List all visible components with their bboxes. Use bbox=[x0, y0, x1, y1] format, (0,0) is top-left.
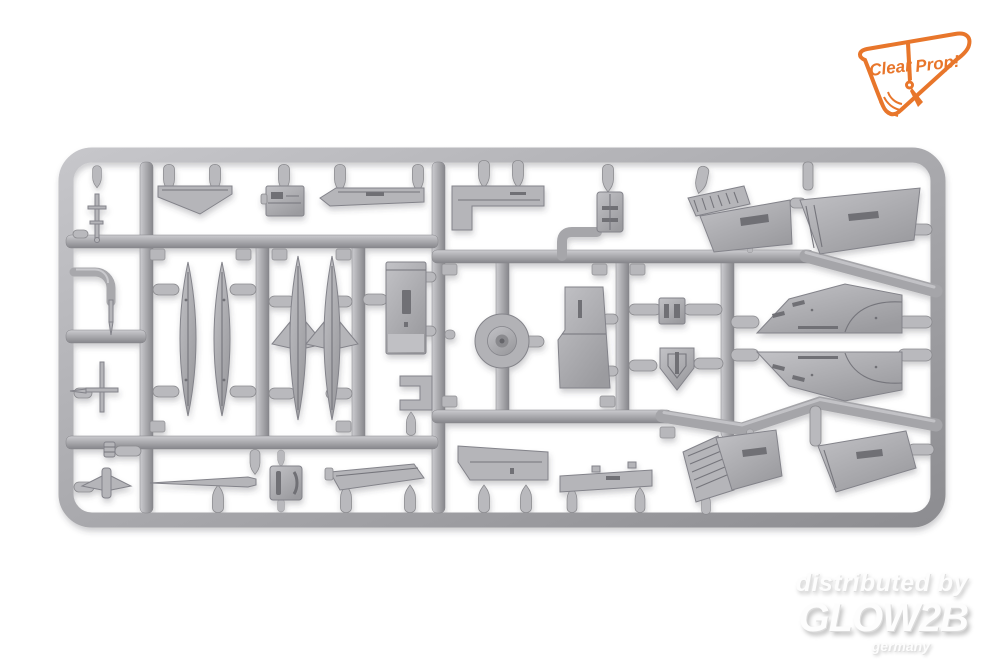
part-ribbed-flap-pair-bottom bbox=[683, 430, 782, 502]
part-triangular-plate bbox=[158, 186, 232, 214]
part-l-plate-top bbox=[452, 186, 544, 230]
part-small-clamp-top bbox=[597, 192, 623, 232]
runner-v4 bbox=[432, 162, 445, 513]
watermark-brand-glow2b: GLOW2B bbox=[796, 598, 968, 638]
part-tail-fin bbox=[558, 287, 610, 388]
runner-h2-mid bbox=[432, 410, 672, 423]
part-needle-probe bbox=[150, 477, 256, 487]
logo-text-prop: Prop! bbox=[914, 52, 961, 76]
sprue-parts bbox=[70, 186, 920, 502]
runner-h1-mid bbox=[432, 250, 814, 263]
part-intake-cone bbox=[660, 348, 694, 390]
part-delta-wing-upper-half bbox=[757, 284, 902, 333]
part-equipment-box bbox=[261, 186, 304, 216]
part-winged-unit bbox=[82, 468, 131, 498]
part-delta-wing-lower-half bbox=[757, 352, 902, 401]
part-l-plate-bottom bbox=[458, 446, 548, 480]
runner-h-mid-left bbox=[66, 330, 146, 343]
part-canopy-clamp-mid bbox=[659, 298, 685, 324]
part-wing-panel-bottom-right bbox=[818, 431, 916, 492]
part-avionics-box bbox=[386, 262, 426, 354]
part-flap-pair-top bbox=[688, 186, 792, 252]
part-u-bracket bbox=[400, 376, 432, 410]
runner-v2 bbox=[256, 238, 269, 443]
runner-highlight bbox=[806, 253, 934, 288]
part-strip-panel bbox=[320, 188, 424, 206]
part-wheel-disc bbox=[475, 314, 529, 368]
part-drop-tank-half-2 bbox=[214, 262, 230, 416]
part-clamp-bottom bbox=[270, 466, 302, 500]
part-small-cylinder bbox=[104, 442, 115, 457]
runner-h1-left bbox=[66, 235, 438, 248]
clearprop-logo-badge: Clear Prop! bbox=[844, 30, 982, 134]
part-pitot-probe bbox=[70, 362, 118, 412]
part-bent-pipe bbox=[74, 270, 113, 336]
part-strip-bottom bbox=[560, 462, 652, 492]
runner-v7 bbox=[721, 250, 734, 438]
product-photo: Clear Prop! distributed by GLOW2B german… bbox=[0, 0, 1000, 667]
runner-diagonal-top-right bbox=[806, 256, 936, 291]
watermark-line-distributed-by: distributed by bbox=[796, 571, 968, 596]
part-wing-panel-top-right bbox=[800, 188, 920, 254]
part-drop-tank-half-1 bbox=[180, 262, 196, 416]
watermark-distributor: distributed by GLOW2B germany bbox=[796, 571, 968, 653]
watermark-country-germany: germany bbox=[796, 639, 968, 653]
runner-v6 bbox=[616, 253, 629, 417]
